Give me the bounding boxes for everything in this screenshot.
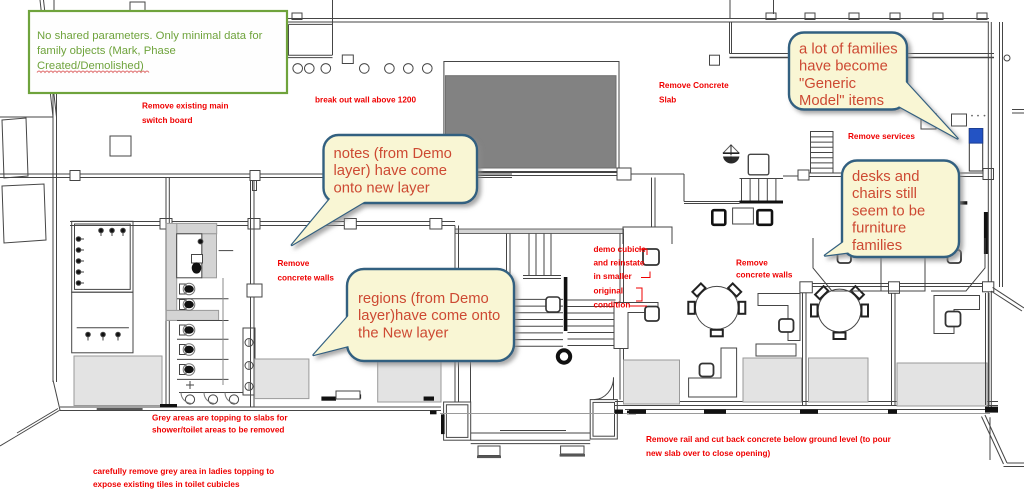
svg-text:Created/Demolished): Created/Demolished) [37, 60, 144, 72]
svg-text:Remove rail and cut back concr: Remove rail and cut back concrete below … [646, 435, 892, 444]
svg-text:carefully remove grey area in: carefully remove grey area in ladies top… [93, 467, 274, 476]
svg-text:Remove: Remove [736, 259, 768, 268]
svg-text:concrete walls: concrete walls [736, 271, 793, 280]
svg-text:layer) have come: layer) have come [334, 163, 448, 179]
svg-text:switch board: switch board [142, 116, 193, 125]
svg-text:Remove: Remove [278, 259, 310, 268]
svg-text:Remove existing main: Remove existing main [142, 102, 228, 111]
svg-text:expose existing tiles in toile: expose existing tiles in toilet cubicles [93, 480, 240, 489]
svg-text:Remove Concrete: Remove Concrete [659, 81, 729, 90]
svg-text:family objects (Mark, Phase: family objects (Mark, Phase [37, 45, 176, 57]
svg-text:break out wall above 1200: break out wall above 1200 [315, 96, 416, 105]
svg-text:Slab: Slab [659, 96, 676, 105]
svg-text:in smaller: in smaller [594, 272, 633, 281]
svg-text:concrete walls: concrete walls [278, 274, 335, 283]
svg-text:"Generic: "Generic [799, 76, 857, 92]
svg-text:demo cubicle: demo cubicle [594, 245, 647, 254]
svg-text:have become: have become [799, 59, 888, 75]
svg-text:desks and: desks and [852, 169, 919, 185]
svg-text:onto new layer: onto new layer [334, 180, 430, 196]
svg-text:shower/toilet areas to be remo: shower/toilet areas to be removed [152, 426, 284, 435]
svg-text:seem to be: seem to be [852, 203, 925, 219]
svg-text:condition: condition [594, 301, 631, 310]
svg-text:layer)have come onto: layer)have come onto [358, 308, 500, 324]
svg-text:notes (from Demo: notes (from Demo [334, 146, 452, 162]
svg-text:Grey areas are topping to slab: Grey areas are topping to slabs for [152, 414, 288, 423]
svg-text:No shared parameters. Only min: No shared parameters. Only minimal data … [37, 30, 263, 42]
svg-text:furniture: furniture [852, 221, 906, 237]
svg-text:chairs still: chairs still [852, 186, 917, 202]
svg-text:families: families [852, 238, 902, 254]
svg-text:regions (from Demo: regions (from Demo [358, 291, 489, 307]
svg-text:the New layer: the New layer [358, 325, 449, 341]
svg-text:and reinstate: and reinstate [594, 259, 645, 268]
svg-text:original: original [594, 287, 624, 296]
svg-text:Remove services: Remove services [848, 132, 915, 141]
svg-text:Model" items: Model" items [799, 93, 884, 109]
svg-text:a lot of families: a lot of families [799, 42, 898, 58]
svg-text:new slab over to close opening: new slab over to close opening) [646, 449, 770, 458]
